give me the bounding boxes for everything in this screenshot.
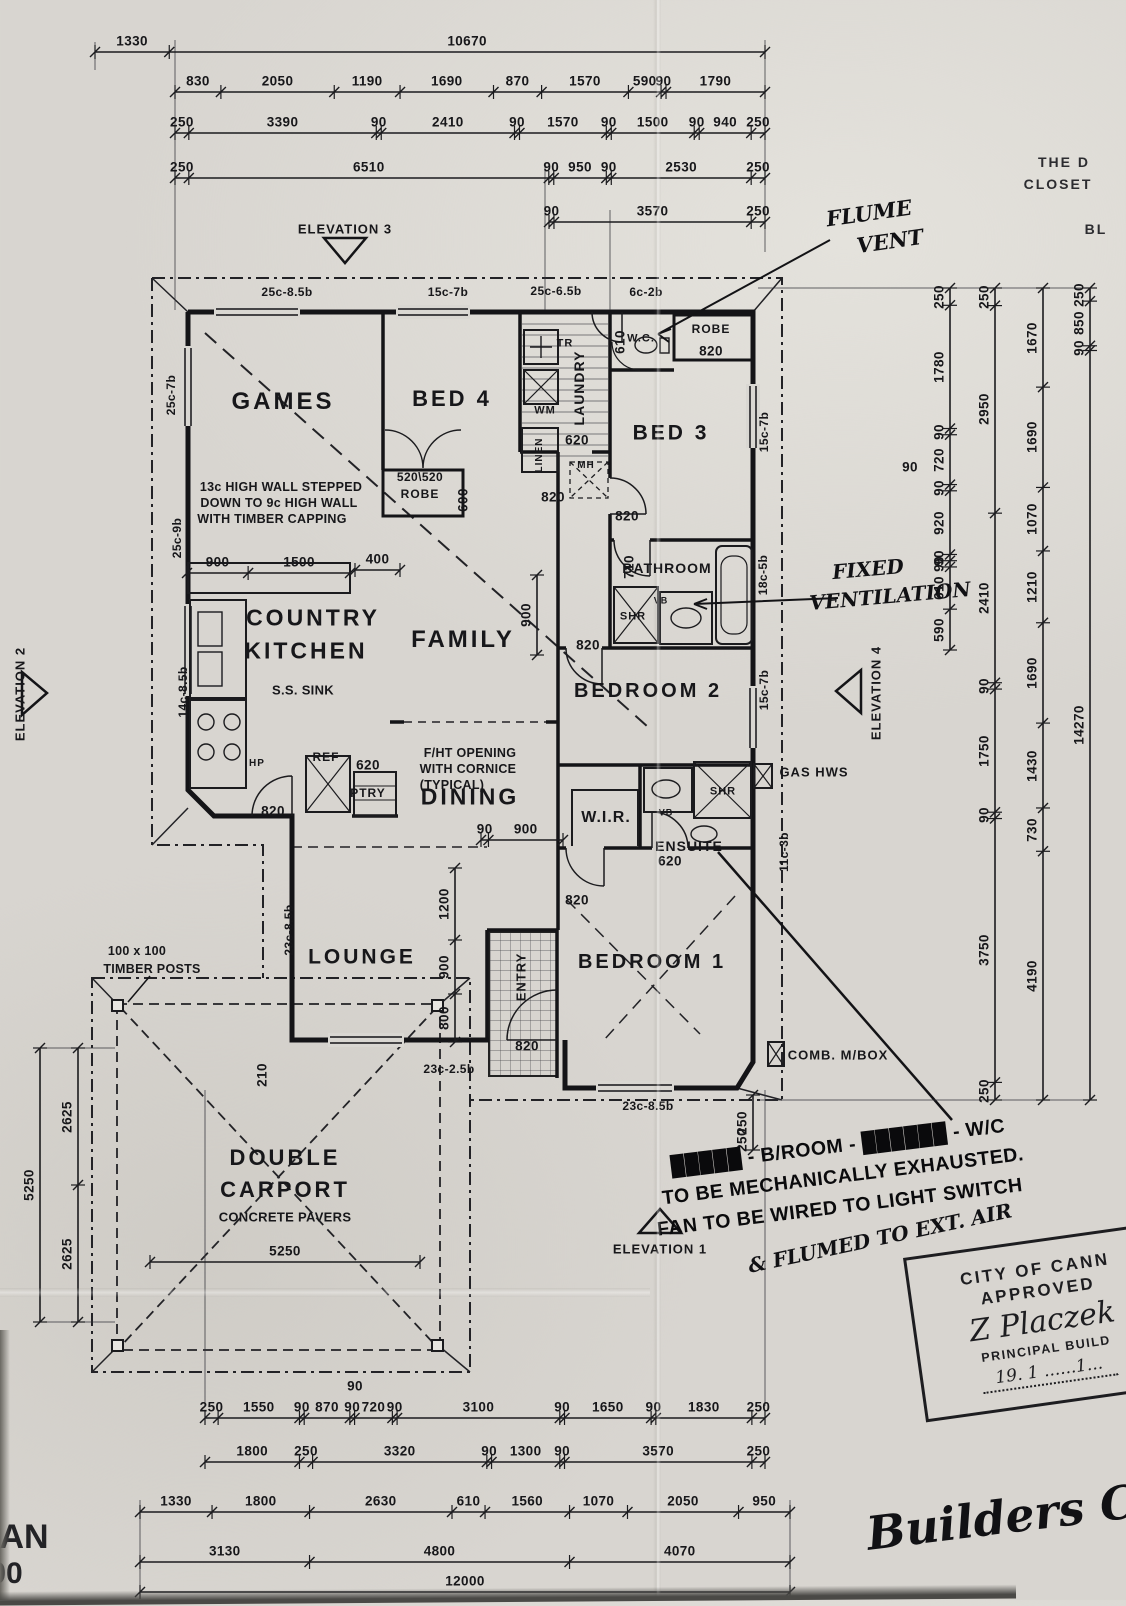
door-swings (252, 312, 688, 1040)
dim-label: 90 (977, 678, 991, 694)
dim-label: 1690 (431, 74, 463, 88)
dim-label: 2050 (667, 1494, 699, 1508)
dim-label: 900 (519, 603, 533, 627)
handwritten-fixed-vent-1: FIXED (831, 556, 904, 582)
dim-label: 90 (554, 1400, 570, 1414)
linen-label: LINEN (535, 438, 545, 473)
dim-label: 1330 (160, 1494, 192, 1508)
elevation-2-label: ELEVATION 2 (14, 647, 27, 741)
trough-label: TR (557, 339, 574, 350)
room-label-carport-line2: CARPORT (220, 1179, 350, 1201)
dim-label: 250 (294, 1444, 318, 1458)
dim-label: 14270 (1072, 705, 1086, 745)
dim-label: 850 (1072, 312, 1086, 336)
dim-label: 870 (506, 74, 530, 88)
dim-label: 250 (746, 160, 770, 174)
dim-label: 1070 (583, 1494, 615, 1508)
room-label-bedroom2: BEDROOM 2 (574, 681, 722, 701)
dim-label: 2530 (665, 160, 697, 174)
dim-label: 90 (481, 1444, 497, 1458)
dim-label: 940 (713, 115, 737, 129)
dim-label: 2625 (60, 1238, 74, 1270)
dim-label: 1330 (116, 34, 148, 48)
dim-label: 830 (186, 74, 210, 88)
floor-plan-sheet: GAMESBED 4BED 3BEDROOM 2BEDROOM 1FAMILYD… (0, 0, 1126, 1600)
dim-label: 1790 (700, 74, 732, 88)
room-label-wir: W.I.R. (581, 810, 631, 826)
edge-fragment-3: BL (1085, 222, 1108, 236)
dim-label: 250 (170, 115, 194, 129)
dim-label: 10670 (447, 34, 487, 48)
timber-posts-note-line2: TIMBER POSTS (103, 963, 200, 976)
dim-label: 3390 (267, 115, 299, 129)
dim-label: 900 (514, 822, 538, 836)
wall-type-label: 25c-6.5b (530, 285, 581, 297)
dim-label: 5250 (22, 1169, 36, 1201)
dim-label: 950 (752, 1494, 776, 1508)
elevation-3-label: ELEVATION 3 (298, 223, 392, 236)
wall-type-label: 15c-7b (758, 412, 770, 452)
wall-type-label: 25c-8.5b (261, 286, 312, 298)
dim-label: 900 (437, 955, 451, 979)
shower-bathroom-label: SHR (620, 612, 646, 623)
dim-label: 250 (977, 285, 991, 309)
dim-label: 1690 (1025, 657, 1039, 689)
dim-label: 620 (565, 433, 589, 447)
dim-label: 250 (977, 1079, 991, 1103)
dim-label: 90 (387, 1400, 403, 1414)
dim-label: 1780 (932, 351, 946, 383)
dim-label: 2050 (262, 74, 294, 88)
sink-label: S.S. SINK (272, 684, 334, 697)
dim-label: 250 (1072, 283, 1086, 307)
room-label-entry: ENTRY (515, 953, 528, 1002)
dim-label: 610 (932, 576, 946, 600)
dim-label: 2950 (977, 394, 991, 426)
dim-label: 3130 (209, 1544, 241, 1558)
dim-label: 1670 (1025, 322, 1039, 354)
dim-label: 90 (509, 115, 525, 129)
dim-label: 90 (371, 115, 387, 129)
dim-label: 820 (515, 1039, 539, 1053)
paper-fold-vertical (653, 0, 661, 1600)
dim-label: 90 (932, 480, 946, 496)
room-label-games: GAMES (231, 390, 334, 414)
robe-bed4-label: ROBE (401, 488, 440, 500)
dim-label: 250 (747, 1400, 771, 1414)
dim-label: 6510 (353, 160, 385, 174)
dim-label: 90 (601, 160, 617, 174)
wall-type-label: 25c-9b (171, 518, 183, 558)
wall-type-label: 25c-7b (165, 375, 177, 415)
dim-label: 4070 (664, 1544, 696, 1558)
dim-label: 2625 (60, 1101, 74, 1133)
dim-label: 720 (932, 448, 946, 472)
dim-label: 1690 (1025, 421, 1039, 453)
dim-label: 1430 (1025, 750, 1039, 782)
dim-label: 1300 (510, 1444, 542, 1458)
wall-type-label: 23c-2.5b (423, 1063, 474, 1075)
dim-label: 870 (315, 1400, 339, 1414)
dim-label: 1560 (511, 1494, 543, 1508)
dim-label: 820 (261, 804, 285, 818)
room-label-kitchen-line2: KITCHEN (244, 640, 367, 663)
fht-note-line3: (TYPICAL) (420, 779, 485, 792)
wall-type-label: 11c-3b (778, 832, 790, 872)
scanned-floor-plan-sheet: { "stamp": { "line1": "CITY OF CANN", "l… (0, 0, 1126, 1600)
wall-type-label: 23c-8.5b (283, 904, 295, 955)
dim-label: 620 (356, 758, 380, 772)
dim-label: 3100 (463, 1400, 495, 1414)
room-label-bedroom1: BEDROOM 1 (578, 952, 726, 972)
mailbox-label: COMB. M/BOX (788, 1049, 889, 1062)
dim-label: 720 (362, 1400, 386, 1414)
room-label-ensuite: ENSUITE (655, 839, 723, 853)
dim-label: 950 (568, 160, 592, 174)
dim-label: 250 (747, 1444, 771, 1458)
wall-type-label: 14c-8.5b (177, 666, 189, 717)
dim-label: 90 (977, 807, 991, 823)
carport-pavers-note: CONCRETE PAVERS (219, 1211, 352, 1224)
dim-label: 820 (576, 638, 600, 652)
dim-label: 2410 (432, 115, 464, 129)
dim-label: 1210 (1025, 571, 1039, 603)
wall-type-label: 15c-7b (428, 286, 468, 298)
dim-label: 4800 (424, 1544, 456, 1558)
dim-label: 2410 (977, 582, 991, 614)
dim-label: 90 (294, 1400, 310, 1414)
dim-label: 250 (735, 1111, 749, 1135)
dim-label: 210 (255, 1063, 269, 1087)
dim-label: 730 (1025, 818, 1039, 842)
shower-ensuite-label: SHR (710, 787, 736, 798)
room-label-kitchen-line1: COUNTRY (246, 607, 380, 630)
dim-label: 610 (457, 1494, 481, 1508)
dim-label: 250 (200, 1400, 224, 1414)
room-label-family: FAMILY (411, 628, 515, 652)
dim-label: 90 (554, 1444, 570, 1458)
dim-label: 1750 (977, 735, 991, 767)
dim-label: 1550 (243, 1400, 275, 1414)
dim-label: 90 (477, 822, 493, 836)
wall-type-label: 18c-5b (757, 555, 769, 595)
dim-label: 1650 (592, 1400, 624, 1414)
hotplate-label: HP (249, 759, 265, 769)
dim-label: 90 (1072, 340, 1086, 356)
paper-fold-horizontal (0, 1288, 650, 1297)
dim-label: 820 (541, 490, 565, 504)
room-label-bed3: BED 3 (633, 423, 710, 444)
dim-label: 620 (658, 854, 682, 868)
dim-label: 250 (932, 285, 946, 309)
room-label-bed4: BED 4 (412, 388, 492, 410)
dim-label: 920 (932, 511, 946, 535)
timber-posts-note-line1: 100 x 100 (108, 945, 166, 958)
dim-label: 90 (544, 204, 560, 218)
room-label-carport-line1: DOUBLE (230, 1147, 341, 1169)
dim-label: 1830 (688, 1400, 720, 1414)
pantry-label: PTRY (350, 787, 386, 799)
dim-label: 250 (170, 160, 194, 174)
dim-label: 1570 (547, 115, 579, 129)
dim-label: 400 (366, 552, 390, 566)
dim-label: 820 (615, 509, 639, 523)
elevation-4-label: ELEVATION 4 (870, 646, 883, 740)
ceiling-note-line3: WITH TIMBER CAPPING (197, 513, 346, 526)
dim-label: 1070 (1025, 503, 1039, 535)
dim-label: 250 (746, 204, 770, 218)
robe-bed3-label: ROBE (692, 323, 731, 335)
ceiling-note-line1: 13c HIGH WALL STEPPED (200, 481, 362, 494)
manhole-label: MH (577, 461, 595, 471)
dim-label: 610 (613, 330, 627, 354)
dim-label: 1200 (437, 888, 451, 920)
washing-machine-label: WM (534, 406, 556, 417)
ceiling-note-line2: DOWN TO 9c HIGH WALL (200, 497, 357, 510)
dim-label: 1190 (352, 74, 383, 88)
dim-label: 90 (902, 460, 918, 474)
dim-label: 820 (699, 344, 723, 358)
dim-label: 900 (206, 555, 230, 569)
dim-label: 12000 (445, 1574, 485, 1588)
room-label-laundry: LAUNDRY (572, 351, 586, 426)
dim-label: 5250 (269, 1244, 301, 1258)
dim-label: 820 (565, 893, 589, 907)
edge-fragment-2: CLOSET (1024, 177, 1093, 191)
paper-edge-left (0, 1330, 10, 1600)
dim-label: 90 (601, 115, 617, 129)
fht-note-line1: F/HT OPENING (424, 747, 517, 760)
dim-label: 1800 (245, 1494, 277, 1508)
dim-label: 2630 (365, 1494, 397, 1508)
dim-label: 90 (543, 160, 559, 174)
dim-label: 90 (932, 556, 946, 572)
gas-hws-label: GAS HWS (779, 766, 848, 779)
dim-label: 600 (456, 488, 470, 512)
dim-label: 250 (746, 115, 770, 129)
room-label-wc: W.C. (627, 334, 655, 345)
fht-note-line2: WITH CORNICE (420, 763, 517, 776)
dim-label: 90 (347, 1379, 363, 1393)
dim-label: 800 (437, 1006, 451, 1030)
wall-type-label: 15c-7b (758, 670, 770, 710)
dim-label: 3750 (977, 935, 991, 967)
dim-label: 4190 (1025, 960, 1039, 992)
dim-label: 590 (932, 618, 946, 642)
edge-fragment-1: THE D (1038, 155, 1090, 169)
dim-label: 1800 (236, 1444, 268, 1458)
dim-label: 710 (622, 555, 636, 579)
dim-label: 90 (932, 424, 946, 440)
dim-label: 90 (344, 1400, 360, 1414)
dim-label: 1500 (283, 555, 315, 569)
fridge-label: REF (313, 751, 340, 763)
dim-label: 90 (689, 115, 705, 129)
dim-label: 3320 (384, 1444, 416, 1458)
room-label-lounge: LOUNGE (308, 947, 416, 968)
dim-label: 520\520 (397, 471, 443, 483)
dim-label: 1570 (569, 74, 601, 88)
wall-type-label: 23c-8.5b (622, 1100, 673, 1112)
